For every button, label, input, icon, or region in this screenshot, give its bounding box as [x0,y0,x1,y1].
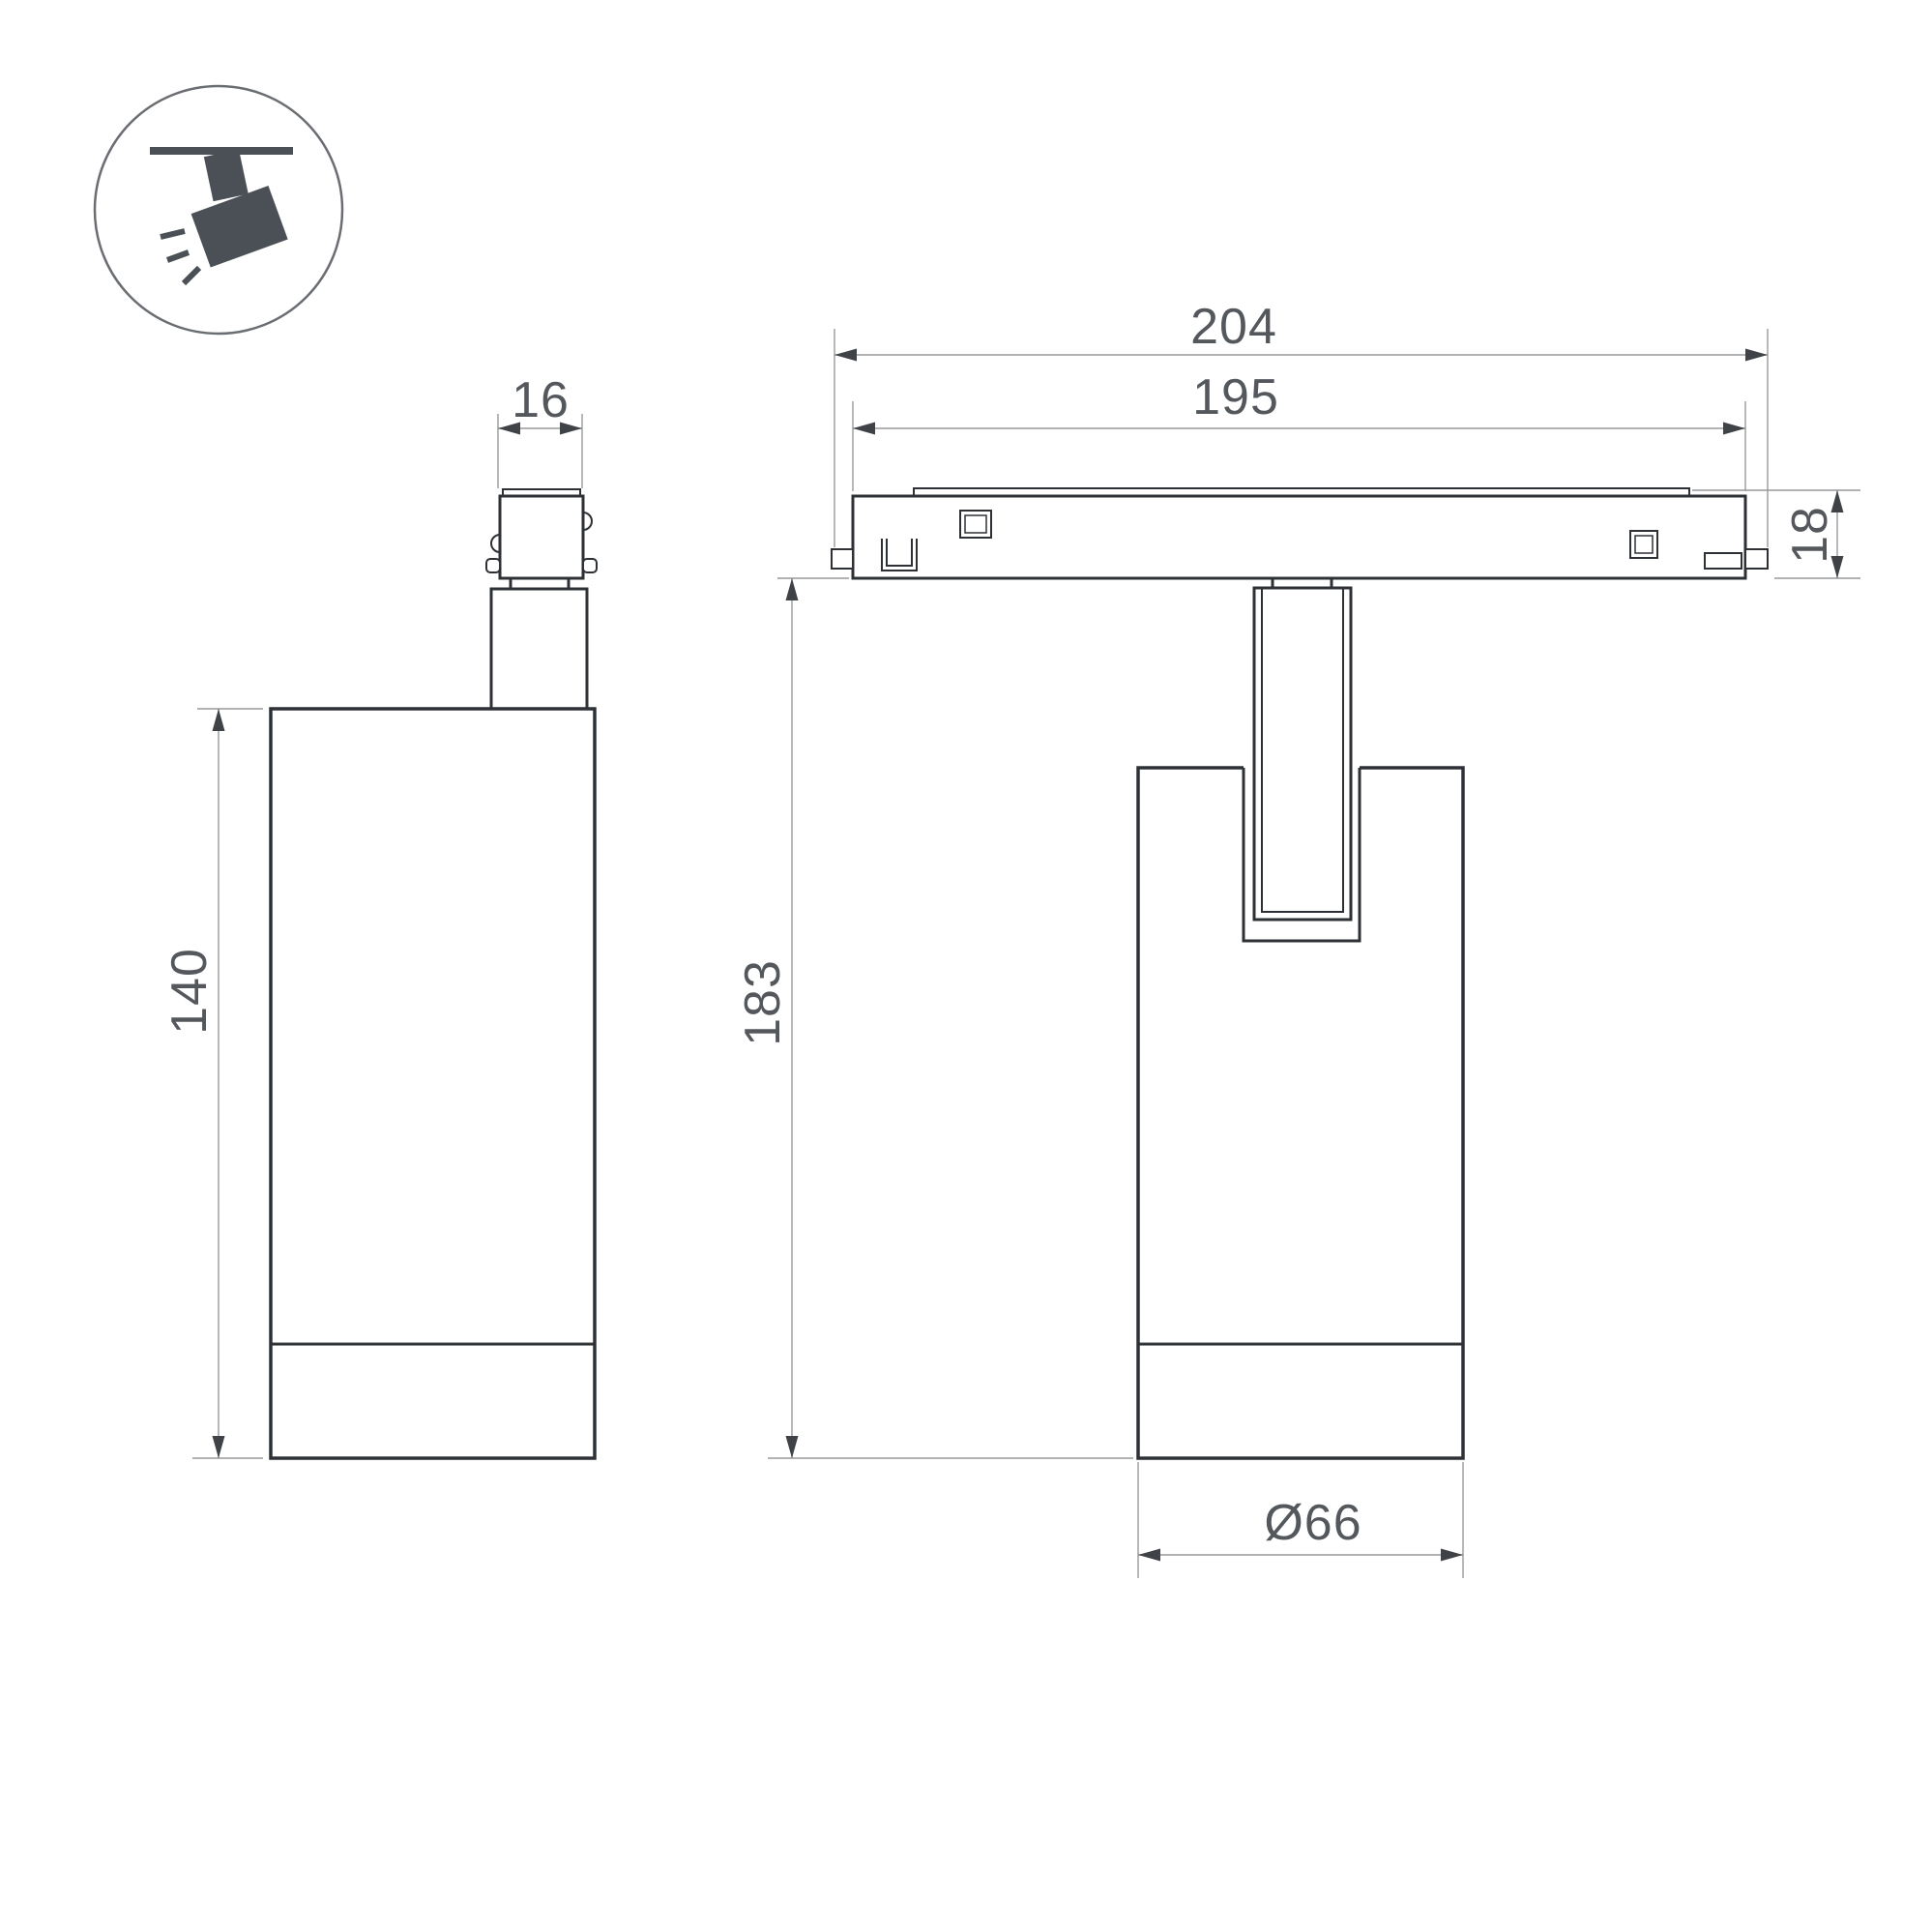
dim-195-lines [853,401,1745,491]
track-light-icon [95,86,342,334]
arrow-left-icon [1138,1549,1160,1562]
dim-label-track-height: 18 [1782,506,1838,564]
arrow-right-icon [1745,349,1768,362]
side-adapter-ear-right [583,559,597,572]
front-stem-outer [1254,588,1351,920]
arrow-up-icon [786,578,799,600]
dim-label-overall-height: 183 [735,959,791,1046]
side-stem [491,589,587,709]
side-body [271,709,595,1458]
arrow-right-icon [1723,423,1745,435]
track-end-tab-right [1745,549,1768,569]
dim-label-body-height: 140 [161,948,218,1035]
track-end-tab-left [832,549,853,569]
dim-140-lines [192,709,263,1458]
front-view [832,488,1768,1458]
technical-drawing-page: 16 140 183 204 195 18 Ø66 [0,0,1932,1932]
side-view [271,489,597,1458]
luminaire-dimension-drawing: 16 140 183 204 195 18 Ø66 [0,0,1932,1932]
side-adapter-ear-left [486,559,500,572]
dim-183-lines [768,578,1133,1458]
side-adapter-block [500,496,583,578]
arrow-down-icon [786,1436,799,1458]
arrow-right-icon [1441,1549,1463,1562]
arrow-down-icon [213,1436,225,1458]
arrow-left-icon [853,423,875,435]
arrow-left-icon [834,349,857,362]
dim-label-track-inner: 195 [1192,369,1279,425]
dim-label-body-diameter: Ø66 [1264,1495,1361,1551]
dim-label-adapter-width: 16 [512,372,570,428]
dim-label-track-overall: 204 [1190,299,1277,355]
arrow-up-icon [213,709,225,731]
side-neck [511,578,569,589]
